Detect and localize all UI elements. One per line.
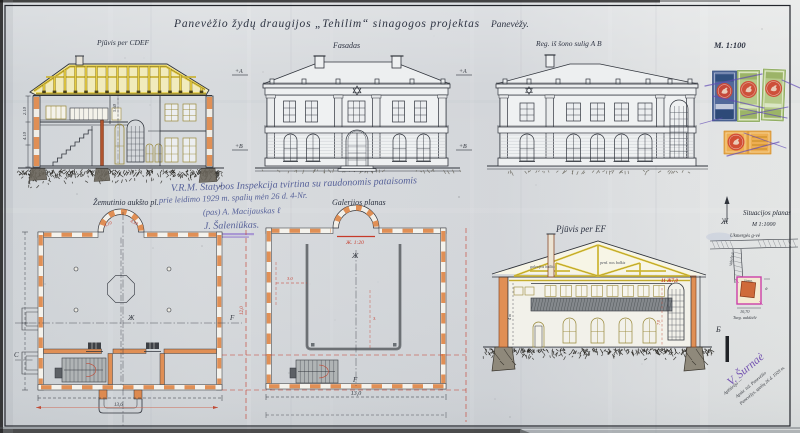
- svg-text:Б: Б: [715, 325, 721, 334]
- svg-text:13,0: 13,0: [351, 391, 362, 397]
- svg-text:C: C: [14, 351, 19, 359]
- svg-text:Fasadas: Fasadas: [332, 41, 360, 50]
- svg-text:+B: +B: [235, 144, 243, 150]
- svg-text:Ж. 1:20: Ж. 1:20: [345, 240, 364, 246]
- svg-text:Žemutinio aukšto pl.: Žemutinio aukšto pl.: [93, 197, 159, 207]
- svg-text:4 m: 4 m: [507, 314, 512, 320]
- svg-text:4.10: 4.10: [22, 131, 27, 140]
- svg-text:Panevėžy.: Panevėžy.: [490, 20, 529, 30]
- svg-text:F: F: [229, 314, 235, 322]
- svg-text:5.60: 5.60: [112, 103, 117, 112]
- svg-text:Ukmergės g-vė: Ukmergės g-vė: [730, 234, 761, 239]
- svg-text:+B: +B: [459, 144, 467, 150]
- svg-text:+A: +A: [235, 69, 243, 75]
- svg-text:J. Šaleniūkas.: J. Šaleniūkas.: [204, 219, 260, 232]
- svg-text:13,6: 13,6: [114, 403, 123, 408]
- svg-text:Ж: Ж: [351, 252, 359, 260]
- svg-text:ŵ: ŵ: [765, 286, 768, 291]
- svg-text:Sinag.: Sinag.: [744, 279, 753, 283]
- svg-text:M. 1:100: M. 1:100: [713, 40, 746, 50]
- svg-text:M 1:1000: M 1:1000: [751, 222, 776, 228]
- svg-text:3.0: 3.0: [287, 276, 293, 281]
- svg-text:galerijos balkis: galerijos balkis: [530, 264, 555, 269]
- svg-text:Situacijos planas: Situacijos planas: [743, 209, 791, 217]
- svg-text:F: F: [352, 376, 358, 384]
- svg-text:Ж: Ж: [720, 217, 729, 226]
- svg-text:Turg. aukštėlė: Turg. aukštėlė: [733, 315, 757, 320]
- svg-text:Ж: Ж: [127, 314, 135, 322]
- svg-text:3.: 3.: [373, 316, 376, 321]
- svg-text:Reg. iš šono sulig A B: Reg. iš šono sulig A B: [535, 39, 602, 48]
- svg-text:Pjūvis per EF: Pjūvis per EF: [555, 224, 606, 234]
- svg-text:12,0: 12,0: [240, 306, 245, 315]
- svg-text:perd. nos balkis: perd. nos balkis: [599, 260, 626, 265]
- svg-text:(pas) A. Macijauskas ℓ: (pas) A. Macijauskas ℓ: [203, 205, 281, 217]
- svg-text:2.10: 2.10: [22, 106, 27, 115]
- svg-text:Pjūvis per CDEF: Pjūvis per CDEF: [96, 38, 149, 47]
- svg-text:11 Ж7,0: 11 Ж7,0: [661, 279, 678, 284]
- svg-text:+A: +A: [459, 69, 467, 75]
- svg-text:Panevėžio žydų draugijos „Tehi: Panevėžio žydų draugijos „Tehilim“ sinag…: [173, 18, 480, 30]
